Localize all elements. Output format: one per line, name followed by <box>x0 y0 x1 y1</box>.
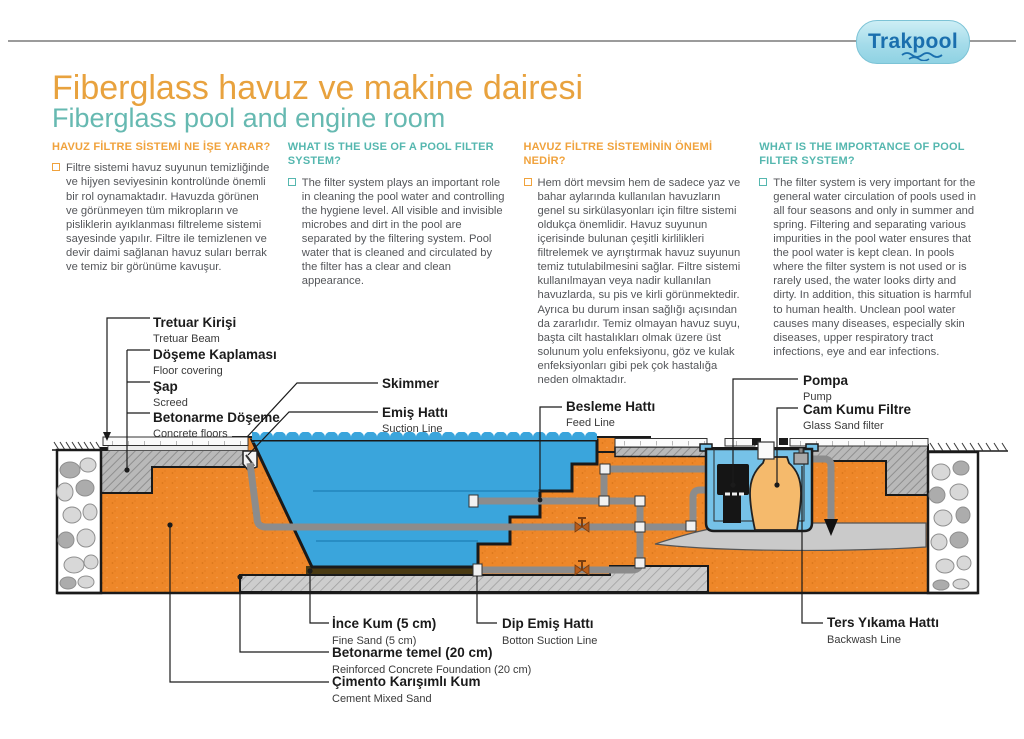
label-betonarme-temel-tr: Betonarme temel (20 cm) <box>332 645 493 660</box>
engine-room <box>700 438 818 531</box>
label-doseme-tr: Döşeme Kaplaması <box>153 347 277 362</box>
label-dip-emis-en: Botton Suction Line <box>502 635 597 647</box>
label-dip-emis-tr: Dip Emiş Hattı <box>502 616 594 631</box>
label-pompa-tr: Pompa <box>803 373 849 388</box>
label-betonarme-doseme-en: Concrete floors <box>153 428 228 440</box>
label-tretuar-tr: Tretuar Kirişi <box>153 315 236 330</box>
pipe-tee-fitting <box>599 496 609 506</box>
glass-sand-filter-vessel <box>750 457 801 530</box>
label-cimento-en: Cement Mixed Sand <box>332 693 432 705</box>
pipe-cross-fitting <box>635 522 645 532</box>
pit-rim-block <box>779 438 788 445</box>
label-sap-tr: Şap <box>153 379 178 394</box>
pebble-wall-right <box>928 452 978 593</box>
bottom-suction-inlet-cap <box>473 564 482 576</box>
label-doseme-en: Floor covering <box>153 365 223 377</box>
leader-tretuar <box>107 318 150 433</box>
label-emis-tr: Emiş Hattı <box>382 405 448 420</box>
feed-outlet-cap <box>469 495 478 507</box>
label-besleme-en: Feed Line <box>566 417 615 429</box>
label-sap-en: Screed <box>153 397 188 409</box>
label-ters-yikama-en: Backwash Line <box>827 634 901 646</box>
label-cam-kumu-tr: Cam Kumu Filtre <box>803 402 912 417</box>
label-tretuar-en: Tretuar Beam <box>153 333 220 345</box>
pebble-wall-left <box>57 450 101 593</box>
ground-surface-right <box>928 443 1008 451</box>
floor-covering-right-a <box>725 439 755 447</box>
pipe-elbow-fitting <box>600 464 610 474</box>
label-ince-kum-tr: İnce Kum (5 cm) <box>332 616 436 631</box>
label-ters-yikama-tr: Ters Yıkama Hattı <box>827 615 939 630</box>
filter-standpipe <box>758 442 774 459</box>
page: Trakpool Fiberglass havuz ve makine dair… <box>0 0 1024 739</box>
label-besleme-tr: Besleme Hattı <box>566 399 655 414</box>
pipe-elbow-fitting <box>686 521 696 531</box>
concrete-floor-mid <box>615 447 707 457</box>
label-cimento-tr: Çimento Karışımlı Kum <box>332 674 481 689</box>
label-betonarme-doseme-tr: Betonarme Döşeme <box>153 410 280 425</box>
pipe-elbow-fitting <box>635 558 645 568</box>
pool-cross-section-diagram: Tretuar Kirişi Tretuar Beam Döşeme Kapla… <box>0 0 1024 739</box>
floor-covering-mid <box>615 439 707 448</box>
label-skimmer: Skimmer <box>382 376 440 391</box>
label-cam-kumu-en: Glass Sand filter <box>803 420 884 432</box>
pipe-tee-fitting <box>635 496 645 506</box>
label-emis-en: Suction Line <box>382 423 443 435</box>
